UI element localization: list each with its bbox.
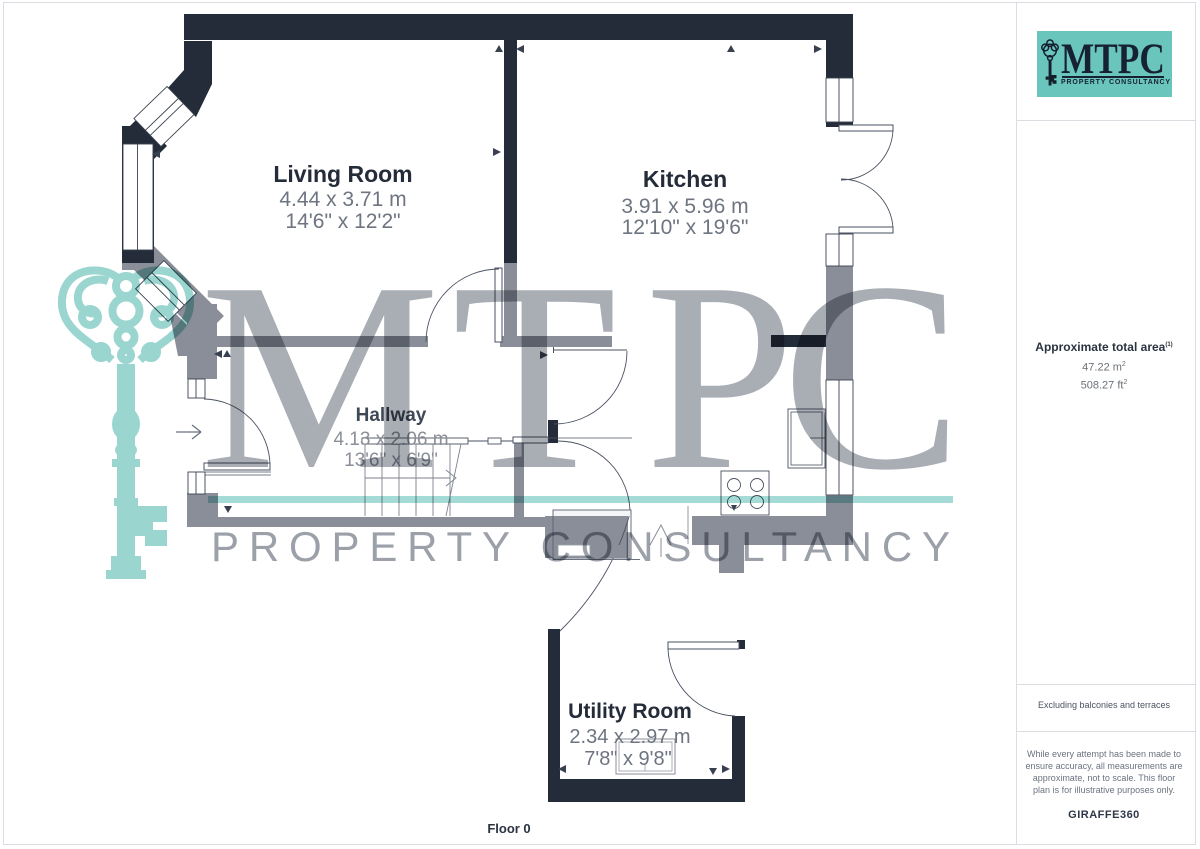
svg-text:2.34 x 2.97 m: 2.34 x 2.97 m [569, 726, 690, 748]
svg-text:Kitchen: Kitchen [643, 166, 727, 192]
svg-text:Living Room: Living Room [273, 161, 412, 187]
svg-text:MTPC: MTPC [200, 227, 962, 526]
svg-text:7'8" x 9'8": 7'8" x 9'8" [584, 748, 671, 770]
svg-text:4.44 x 3.71 m: 4.44 x 3.71 m [279, 188, 406, 211]
svg-text:3.91 x 5.96 m: 3.91 x 5.96 m [621, 195, 748, 218]
svg-text:Utility Room: Utility Room [568, 700, 692, 723]
